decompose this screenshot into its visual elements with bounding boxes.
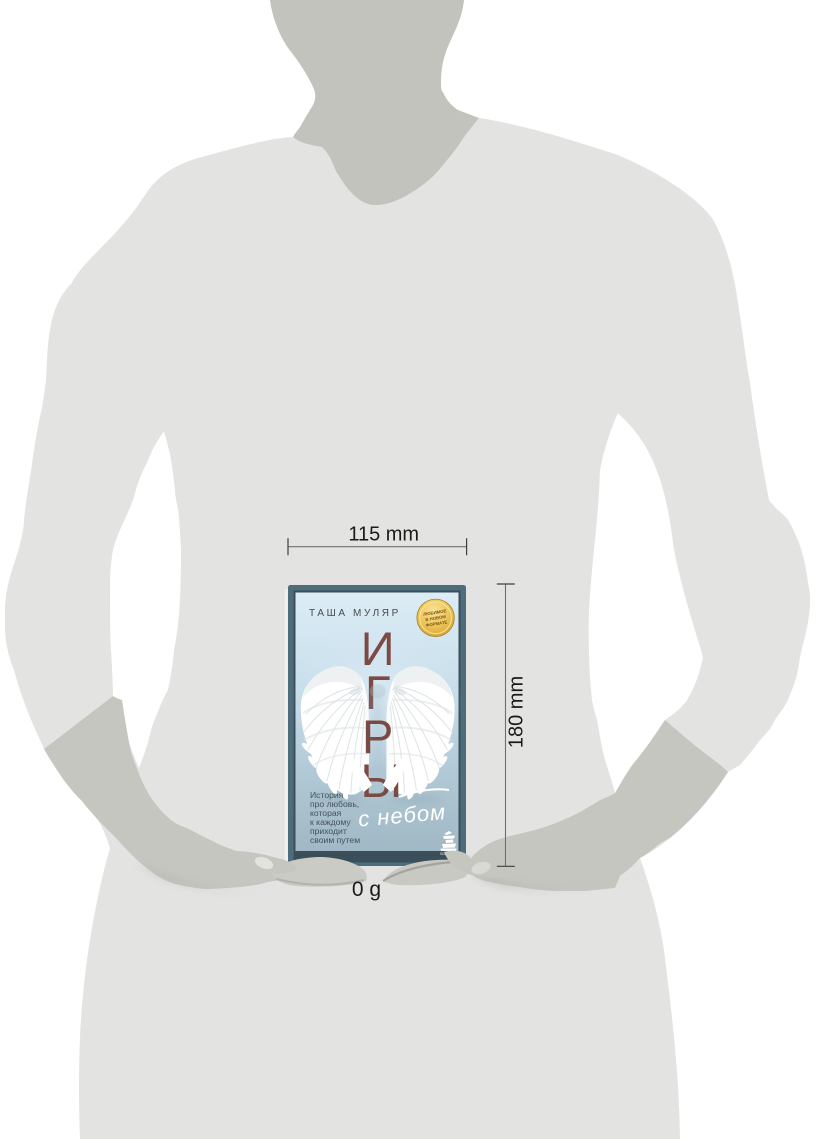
svg-text:ТАША МУЛЯР: ТАША МУЛЯР [309,608,401,619]
svg-text:0 g: 0 g [352,878,381,901]
svg-text:180 mm: 180 mm [506,676,528,748]
svg-text:своим путем: своим путем [310,835,360,845]
svg-text:И: И [361,622,395,675]
svg-text:115 mm: 115 mm [348,524,419,546]
